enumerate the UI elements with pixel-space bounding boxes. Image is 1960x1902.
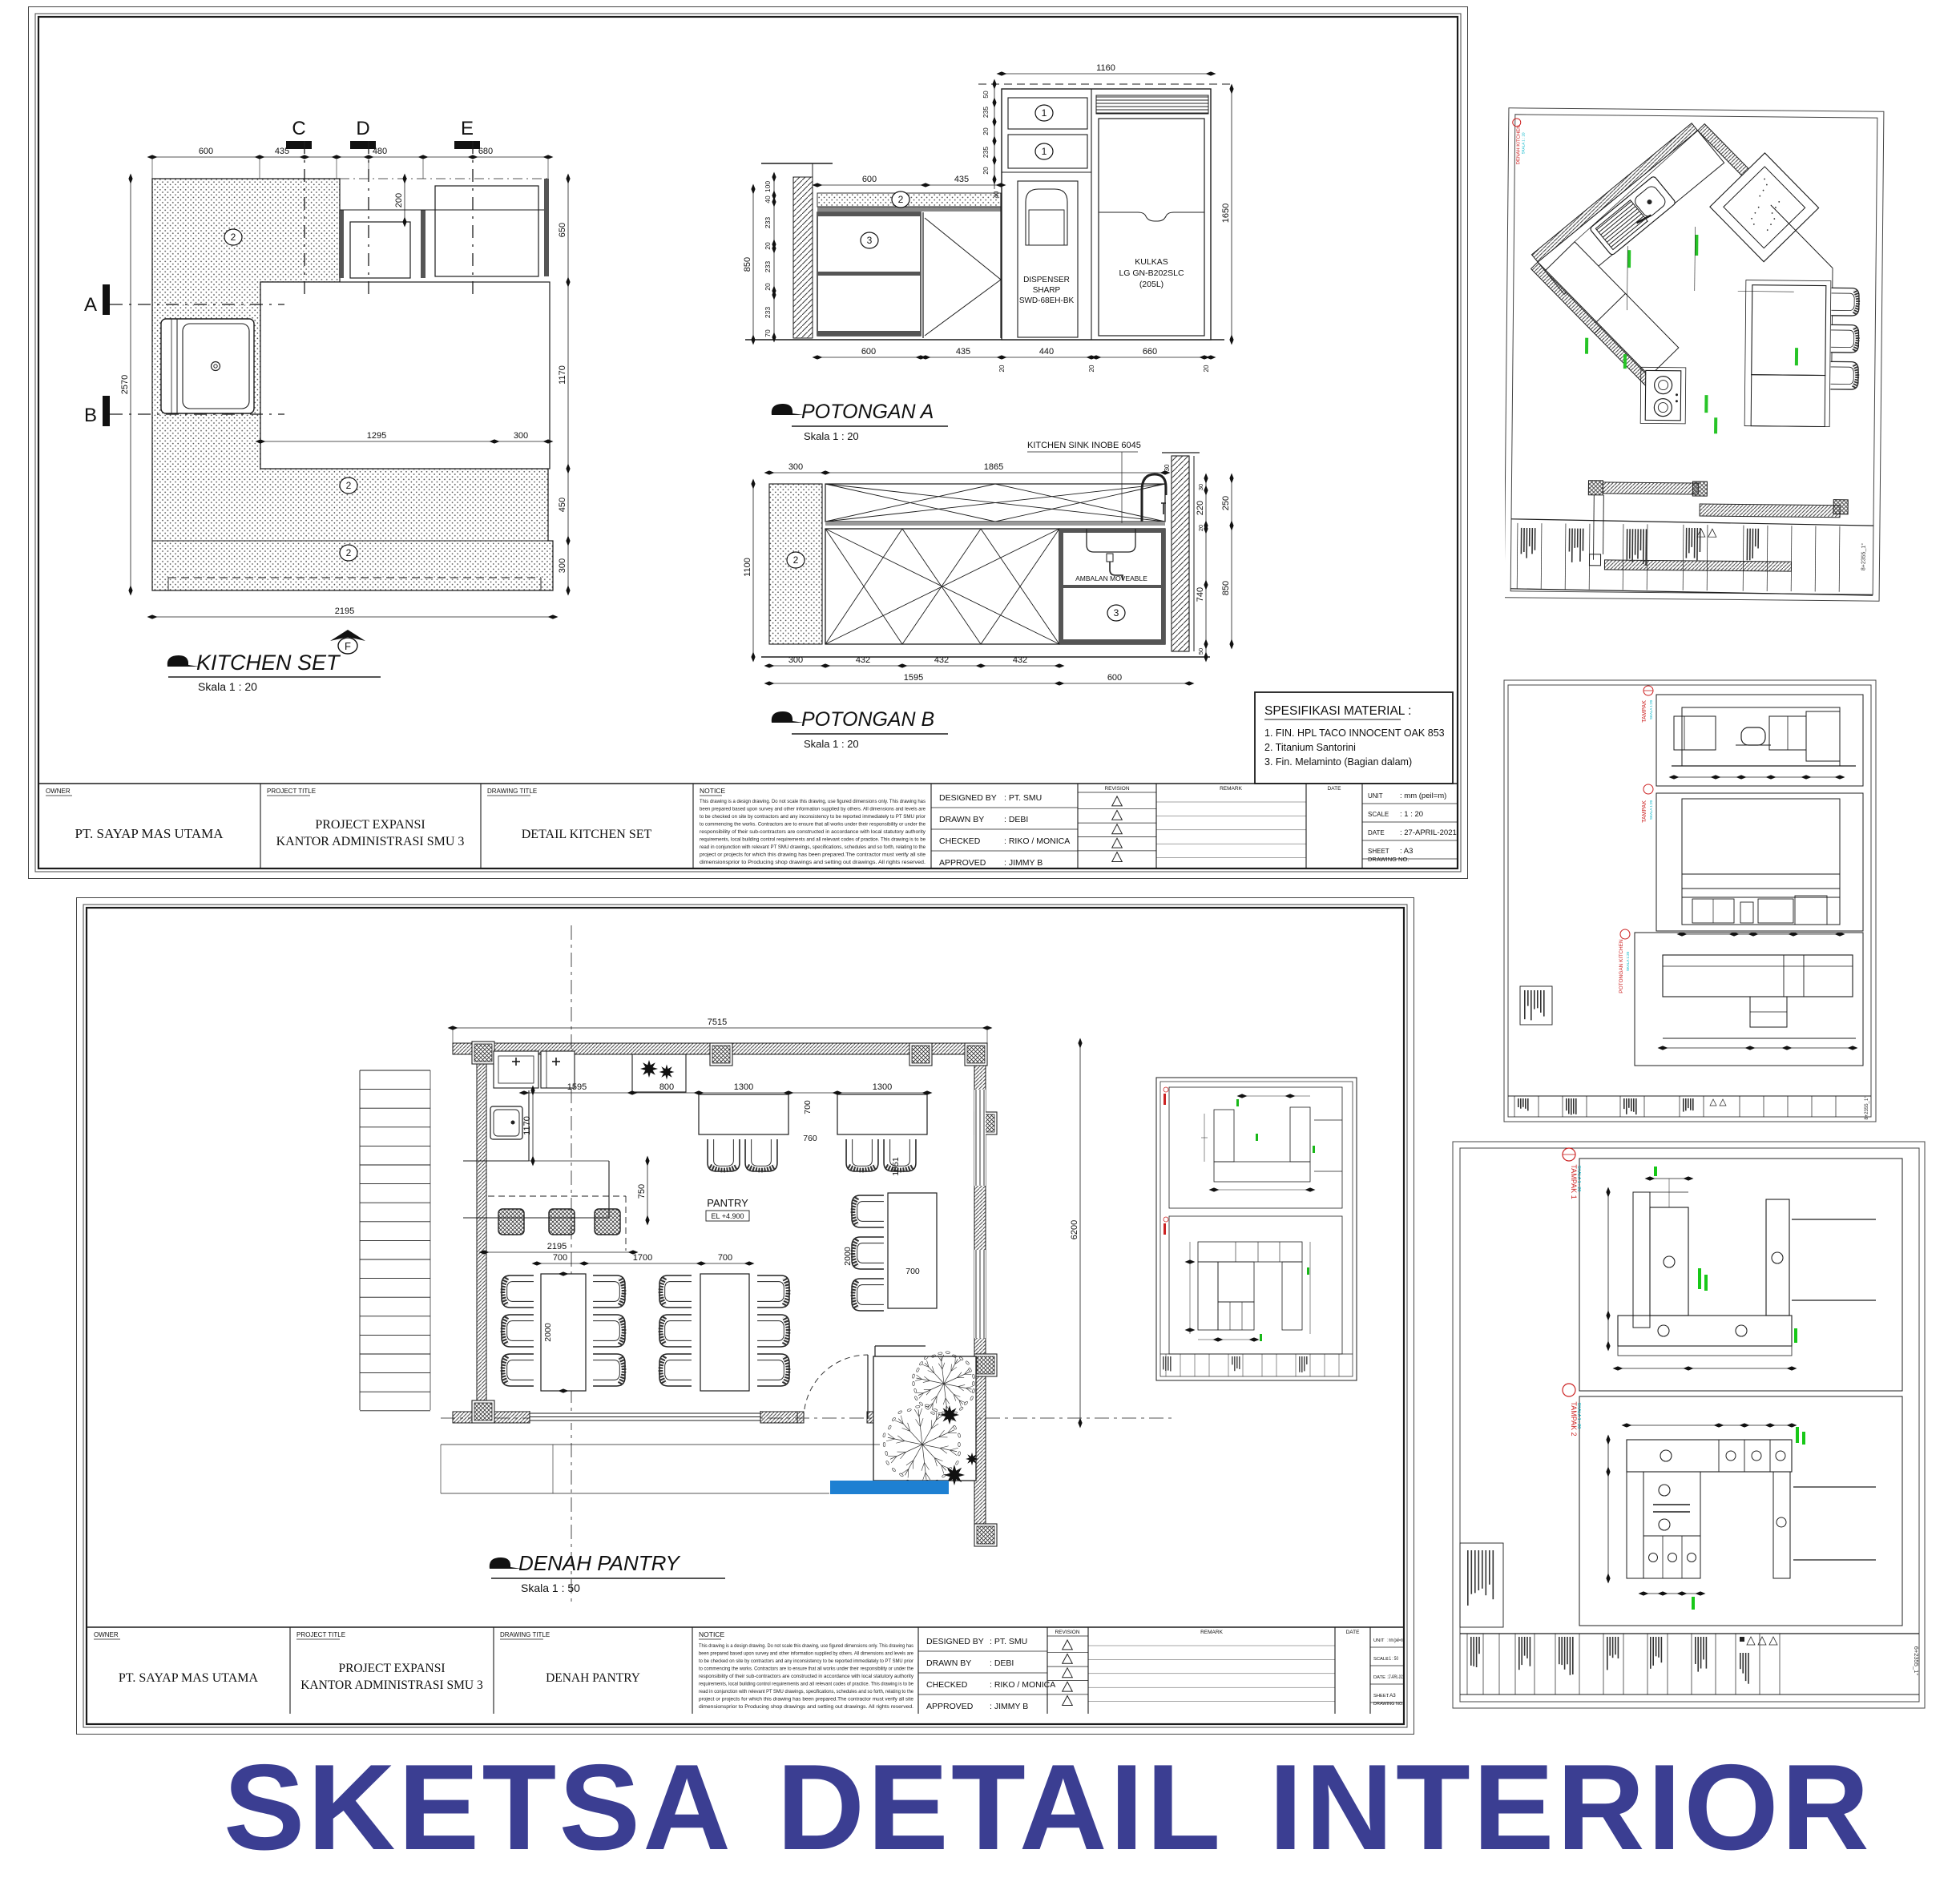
svg-text:F: F <box>345 640 351 652</box>
svg-text:30: 30 <box>1163 464 1171 471</box>
svg-text:650: 650 <box>558 223 567 237</box>
svg-text:TAMPAK: TAMPAK <box>1642 800 1647 823</box>
svg-text:2: 2 <box>898 194 904 205</box>
svg-text:220: 220 <box>1196 501 1205 515</box>
svg-text:50: 50 <box>1197 648 1204 655</box>
svg-text:responsibility of their sub-co: responsibility of their sub-contractors … <box>699 1674 914 1679</box>
svg-text:OWNER: OWNER <box>94 1631 119 1638</box>
svg-text:250: 250 <box>1221 496 1231 510</box>
svg-text:DESIGNED BY: DESIGNED BY <box>939 793 997 803</box>
svg-text:SHEET: SHEET <box>1368 848 1389 855</box>
svg-text:6+2355_1°: 6+2355_1° <box>1913 1646 1920 1676</box>
svg-text:480: 480 <box>373 147 387 156</box>
svg-text:432: 432 <box>1013 655 1027 665</box>
svg-text:1160: 1160 <box>1096 63 1115 73</box>
svg-text:200: 200 <box>394 193 404 208</box>
svg-text:: DEBI: : DEBI <box>990 1658 1014 1668</box>
svg-text:SKALA 1:20: SKALA 1:20 <box>1626 951 1630 971</box>
svg-text:PROJECT EXPANSI: PROJECT EXPANSI <box>315 818 425 832</box>
svg-text:700: 700 <box>905 1267 920 1276</box>
svg-text:1100: 1100 <box>743 558 752 577</box>
svg-text:DRAWN BY: DRAWN BY <box>926 1658 971 1668</box>
svg-text:1170: 1170 <box>522 1116 532 1135</box>
svg-text:70: 70 <box>764 329 772 337</box>
svg-text:SKALA 1 : 20: SKALA 1 : 20 <box>1576 1166 1581 1192</box>
svg-text:CHECKED: CHECKED <box>926 1680 968 1690</box>
svg-text:(205L): (205L) <box>1139 280 1163 289</box>
svg-text:responsibility of their sub-co: responsibility of their sub-contractors … <box>700 829 926 835</box>
svg-text:235: 235 <box>982 107 990 118</box>
svg-text:850: 850 <box>743 257 752 272</box>
svg-text:Skala 1 : 20: Skala 1 : 20 <box>198 680 257 693</box>
svg-text:TAMPAK: TAMPAK <box>1642 700 1647 723</box>
svg-text:NOTICE: NOTICE <box>700 787 725 795</box>
svg-text:20: 20 <box>764 283 772 291</box>
svg-text:This drawing is a design drawi: This drawing is a design drawing. Do not… <box>699 1643 914 1649</box>
svg-text:REMARK: REMARK <box>1220 786 1242 792</box>
svg-text:2: 2 <box>231 232 236 243</box>
svg-text:700: 700 <box>553 1253 567 1263</box>
svg-text:been prepared based upon surve: been prepared based upon survey and othe… <box>699 1651 913 1657</box>
svg-text:UNIT: UNIT <box>1373 1638 1385 1643</box>
svg-text:DISPENSER: DISPENSER <box>1023 276 1070 284</box>
svg-text:20: 20 <box>764 242 772 250</box>
svg-text:POTONGAN B: POTONGAN B <box>801 708 934 731</box>
svg-text:UNIT: UNIT <box>1368 792 1383 800</box>
svg-text:POTONGAN KITCHEN: POTONGAN KITCHEN <box>1619 939 1624 993</box>
svg-text:2: 2 <box>346 547 352 558</box>
svg-text:: 1 : 20: : 1 : 20 <box>1400 810 1423 819</box>
svg-text:2. Titanium Santorini: 2. Titanium Santorini <box>1264 742 1356 753</box>
svg-text:: PT. SMU: : PT. SMU <box>1004 793 1042 803</box>
svg-text:PT. SAYAP MAS UTAMA: PT. SAYAP MAS UTAMA <box>119 1671 259 1685</box>
svg-text:SKALA 1 : 20: SKALA 1 : 20 <box>1521 132 1525 154</box>
svg-text:SKALA 1:20: SKALA 1:20 <box>1649 699 1653 719</box>
svg-text:DRAWING TITLE: DRAWING TITLE <box>487 788 537 795</box>
svg-text:600: 600 <box>199 147 213 156</box>
svg-text:This drawing is a design drawi: This drawing is a design drawing. Do not… <box>700 799 926 804</box>
svg-text:30: 30 <box>1197 484 1204 490</box>
svg-text:D: D <box>356 118 369 139</box>
svg-text:DATE: DATE <box>1346 1630 1361 1635</box>
svg-text:7515: 7515 <box>708 1017 727 1027</box>
svg-text:KULKAS: KULKAS <box>1135 257 1168 267</box>
svg-text:760: 760 <box>803 1134 817 1143</box>
svg-text:440: 440 <box>1039 347 1054 357</box>
svg-text:NOTICE: NOTICE <box>699 1630 724 1638</box>
svg-text:2: 2 <box>346 480 352 491</box>
svg-text:to commencing the works. Contr: to commencing the works. Contractors are… <box>699 1666 913 1672</box>
svg-text:EL +4.900: EL +4.900 <box>712 1212 744 1220</box>
svg-text:DRAWN BY: DRAWN BY <box>939 815 984 824</box>
svg-text:300: 300 <box>514 431 528 441</box>
svg-text:600: 600 <box>1107 673 1122 683</box>
svg-text:2195: 2195 <box>335 606 354 616</box>
svg-text:POTONGAN A: POTONGAN A <box>801 401 934 423</box>
svg-text:KANTOR ADMINISTRASI SMU 3: KANTOR ADMINISTRASI SMU 3 <box>300 1678 483 1692</box>
svg-text:SHARP: SHARP <box>1033 286 1061 295</box>
svg-text:432: 432 <box>856 655 870 665</box>
svg-text:DESIGNED BY: DESIGNED BY <box>926 1637 984 1646</box>
svg-text:DRAWING NO.: DRAWING NO. <box>1373 1702 1404 1707</box>
svg-text:3. Fin. Melaminto (Bagian dala: 3. Fin. Melaminto (Bagian dalam) <box>1264 756 1412 768</box>
svg-text:40: 40 <box>764 195 772 203</box>
svg-text:APPROVED: APPROVED <box>939 858 986 868</box>
svg-text:1865: 1865 <box>984 462 1003 472</box>
svg-text:2000: 2000 <box>843 1247 853 1266</box>
svg-text:680: 680 <box>478 147 493 156</box>
svg-text:A: A <box>84 294 97 316</box>
svg-text:: A3: : A3 <box>1400 847 1413 856</box>
svg-text:: RIKO / MONICA: : RIKO / MONICA <box>1004 836 1070 846</box>
svg-text:8+2355_1°: 8+2355_1° <box>1865 1096 1869 1120</box>
svg-text:1. FIN. HPL TACO INNOCENT OAK: 1. FIN. HPL TACO INNOCENT OAK 853 <box>1264 727 1445 739</box>
svg-text:PROJECT TITLE: PROJECT TITLE <box>267 788 316 795</box>
svg-text:been prepared based upon surve: been prepared based upon survey and othe… <box>700 807 926 812</box>
svg-text:850: 850 <box>1221 581 1231 595</box>
svg-text:450: 450 <box>558 498 567 512</box>
svg-text:3: 3 <box>867 235 873 246</box>
svg-text:20: 20 <box>982 127 990 135</box>
svg-text:LG GN-B202SLC: LG GN-B202SLC <box>1119 268 1184 278</box>
svg-text:233: 233 <box>764 217 772 228</box>
svg-text:: 27-APRIL-2021: : 27-APRIL-2021 <box>1400 828 1457 837</box>
svg-text:1300: 1300 <box>873 1082 892 1092</box>
svg-text:dimensionsprior to Producing s: dimensionsprior to Producing shop drawin… <box>699 1704 913 1710</box>
svg-text:DENAH PANTRY: DENAH PANTRY <box>546 1671 640 1685</box>
svg-text:660: 660 <box>1143 347 1157 357</box>
svg-text:PT. SAYAP MAS UTAMA: PT. SAYAP MAS UTAMA <box>75 826 224 841</box>
svg-text:project or projects for which: project or projects for which this drawi… <box>699 1697 913 1703</box>
svg-text:: RIKO / MONICA: : RIKO / MONICA <box>990 1680 1055 1690</box>
svg-text:DRAWING NO.: DRAWING NO. <box>1368 856 1409 863</box>
svg-text:: JIMMY B: : JIMMY B <box>1004 858 1043 868</box>
svg-text:435: 435 <box>954 175 969 184</box>
svg-text:1295: 1295 <box>367 431 386 441</box>
svg-text:300: 300 <box>788 655 803 665</box>
svg-text:read in conjunction with relev: read in conjunction with relevant PT SMU… <box>699 1689 913 1694</box>
svg-text:1595: 1595 <box>904 673 923 683</box>
svg-text:: 1 : 50: : 1 : 50 <box>1387 1656 1398 1662</box>
svg-text:PROJECT TITLE: PROJECT TITLE <box>296 1631 345 1638</box>
svg-text:8+2355_1°: 8+2355_1° <box>1860 543 1866 570</box>
svg-text:E: E <box>461 118 474 139</box>
svg-text:DRAWING TITLE: DRAWING TITLE <box>500 1631 550 1638</box>
svg-text:1: 1 <box>1042 107 1047 119</box>
svg-text:PROJECT EXPANSI: PROJECT EXPANSI <box>338 1662 445 1675</box>
svg-text:2570: 2570 <box>120 375 130 394</box>
svg-text:Skala 1 : 20: Skala 1 : 20 <box>804 738 859 750</box>
svg-text:dimensionsprior to Producing s: dimensionsprior to Producing shop drawin… <box>700 860 926 865</box>
svg-text:Skala 1 : 20: Skala 1 : 20 <box>804 430 859 442</box>
svg-text:DETAIL KITCHEN SET: DETAIL KITCHEN SET <box>522 828 652 841</box>
svg-text:project or projects for which: project or projects for which this drawi… <box>700 852 926 858</box>
svg-text:1: 1 <box>1042 146 1047 157</box>
svg-text:2000: 2000 <box>543 1323 553 1342</box>
svg-text:SPESIFIKASI MATERIAL :: SPESIFIKASI MATERIAL : <box>1264 704 1411 718</box>
svg-text:: JIMMY B: : JIMMY B <box>990 1702 1028 1711</box>
svg-text:requirements, local building c: requirements, local building control req… <box>699 1682 913 1687</box>
svg-text:700: 700 <box>718 1253 732 1263</box>
svg-text:: mm (peil=m): : mm (peil=m) <box>1387 1638 1404 1643</box>
svg-text:OWNER: OWNER <box>46 788 71 795</box>
svg-text:SKALA 1 : 20: SKALA 1 : 20 <box>1576 1403 1581 1429</box>
svg-text:DENAH PANTRY: DENAH PANTRY <box>518 1551 680 1575</box>
svg-text:requirements, local building c: requirements, local building control req… <box>700 837 926 843</box>
svg-text:CHECKED: CHECKED <box>939 836 981 846</box>
svg-text:20: 20 <box>1197 525 1204 531</box>
svg-text:1300: 1300 <box>734 1082 753 1092</box>
svg-text:KANTOR ADMINISTRASI SMU 3: KANTOR ADMINISTRASI SMU 3 <box>276 835 465 848</box>
svg-text:432: 432 <box>934 655 949 665</box>
svg-text:SKALA 1:20: SKALA 1:20 <box>1649 800 1653 820</box>
svg-text:20: 20 <box>1088 365 1095 372</box>
svg-text:: mm (peil=m): : mm (peil=m) <box>1400 792 1446 800</box>
svg-text:233: 233 <box>764 261 772 272</box>
svg-text:1170: 1170 <box>558 365 567 385</box>
svg-text:AMBALAN MOVEABLE: AMBALAN MOVEABLE <box>1075 574 1147 582</box>
svg-text:APPROVED: APPROVED <box>926 1702 974 1711</box>
svg-text:40: 40 <box>993 191 1000 198</box>
svg-text:50: 50 <box>982 91 990 99</box>
svg-text:to be checked on site by contr: to be checked on site by contractors and… <box>699 1658 914 1664</box>
svg-text:600: 600 <box>861 347 876 357</box>
svg-text:KITCHEN SET: KITCHEN SET <box>196 651 341 675</box>
svg-text:435: 435 <box>956 347 970 357</box>
svg-text:20: 20 <box>1203 365 1210 372</box>
svg-text:1051: 1051 <box>891 1157 901 1176</box>
svg-text:DATE: DATE <box>1328 786 1342 792</box>
svg-text:: A3: : A3 <box>1387 1693 1396 1699</box>
svg-text:SWD-68EH-BK: SWD-68EH-BK <box>1019 296 1075 305</box>
svg-text:435: 435 <box>275 147 289 156</box>
svg-text:SCALE: SCALE <box>1368 811 1389 818</box>
svg-text:800: 800 <box>659 1082 674 1092</box>
svg-text:300: 300 <box>788 462 803 472</box>
svg-text:6200: 6200 <box>1070 1220 1079 1239</box>
svg-text:1595: 1595 <box>567 1082 587 1092</box>
svg-text:2195: 2195 <box>547 1242 567 1251</box>
svg-text:233: 233 <box>764 307 772 318</box>
svg-text:REVISION: REVISION <box>1055 1630 1079 1635</box>
svg-text:1700: 1700 <box>633 1253 652 1263</box>
svg-text:700: 700 <box>803 1100 813 1114</box>
svg-text:300: 300 <box>558 558 567 573</box>
svg-text:235: 235 <box>982 147 990 158</box>
svg-text:: PT. SMU: : PT. SMU <box>990 1637 1027 1646</box>
svg-text:1650: 1650 <box>1221 203 1231 223</box>
svg-text:2: 2 <box>793 554 799 566</box>
svg-text:read in conjunction with relev: read in conjunction with relevant PT SMU… <box>700 844 926 850</box>
svg-text:: DEBI: : DEBI <box>1004 815 1028 824</box>
svg-text:B: B <box>84 405 97 426</box>
svg-text:DATE: DATE <box>1368 829 1385 836</box>
svg-text:to be checked on site by contr: to be checked on site by contractors and… <box>700 814 926 820</box>
svg-text:REVISION: REVISION <box>1104 786 1129 792</box>
svg-text:C: C <box>292 118 305 139</box>
svg-text:100: 100 <box>764 181 772 192</box>
svg-text:600: 600 <box>862 175 877 184</box>
svg-text:750: 750 <box>637 1184 647 1199</box>
svg-text:Skala 1 : 50: Skala 1 : 50 <box>521 1582 580 1594</box>
svg-text:740: 740 <box>1196 587 1205 602</box>
svg-text:20: 20 <box>998 365 1006 372</box>
svg-text:: 27-APRIL-2021: : 27-APRIL-2021 <box>1387 1674 1404 1680</box>
svg-text:20: 20 <box>982 167 990 175</box>
svg-text:to commencing the works. Contr: to commencing the works. Contractors are… <box>700 822 926 828</box>
svg-text:DATE: DATE <box>1373 1675 1385 1680</box>
svg-text:KITCHEN SINK INOBE 6045: KITCHEN SINK INOBE 6045 <box>1027 441 1141 450</box>
svg-text:3: 3 <box>1114 607 1119 619</box>
svg-text:REMARK: REMARK <box>1200 1630 1223 1635</box>
svg-text:PANTRY: PANTRY <box>707 1197 748 1209</box>
